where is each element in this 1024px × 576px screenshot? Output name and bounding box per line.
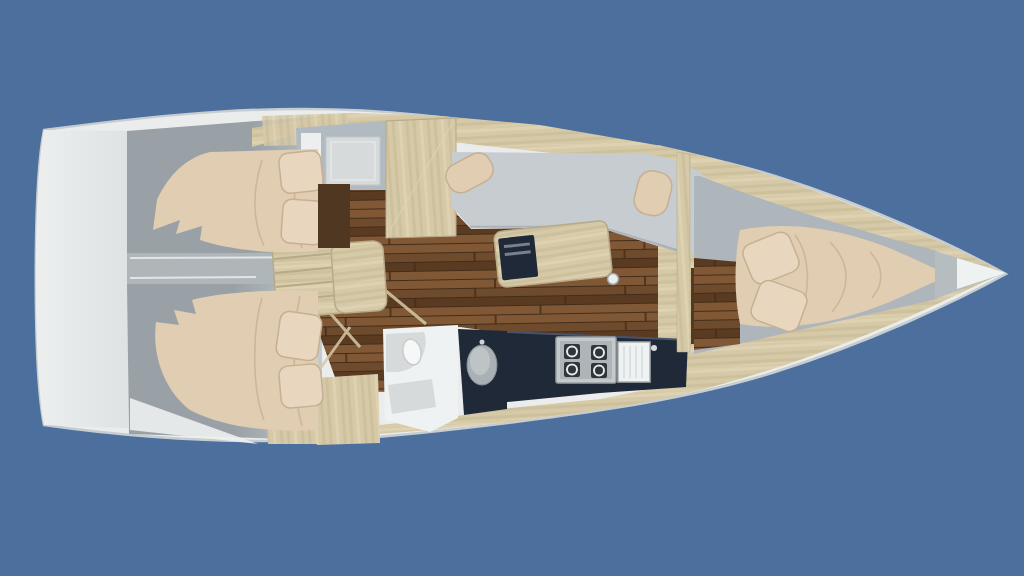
- aft-head-compartment: [383, 325, 458, 432]
- forward-cabin-wood-floor: [694, 258, 740, 350]
- stove: [556, 337, 616, 383]
- engine-cover-panel: [331, 240, 388, 313]
- shower-panel: [326, 137, 380, 185]
- headboard-panel: [318, 184, 350, 248]
- vanity-counter: [458, 329, 507, 415]
- aft-port-pillow-1: [278, 150, 324, 194]
- aft-stbd-pillow-1: [275, 310, 323, 361]
- aft-stbd-pillow-2: [278, 363, 324, 409]
- stern-transom-platform: [36, 130, 128, 428]
- mast-post: [608, 274, 619, 285]
- table-dark-insert: [498, 235, 538, 281]
- vanity-faucet: [480, 340, 485, 345]
- galley-faucet: [651, 345, 657, 351]
- saloon-table: [493, 220, 612, 288]
- bulkhead-post: [677, 152, 690, 352]
- floorplan-canvas: [0, 0, 1024, 576]
- yacht-floorplan-render: [0, 0, 1024, 576]
- galley-lower-cabinet: [315, 374, 380, 445]
